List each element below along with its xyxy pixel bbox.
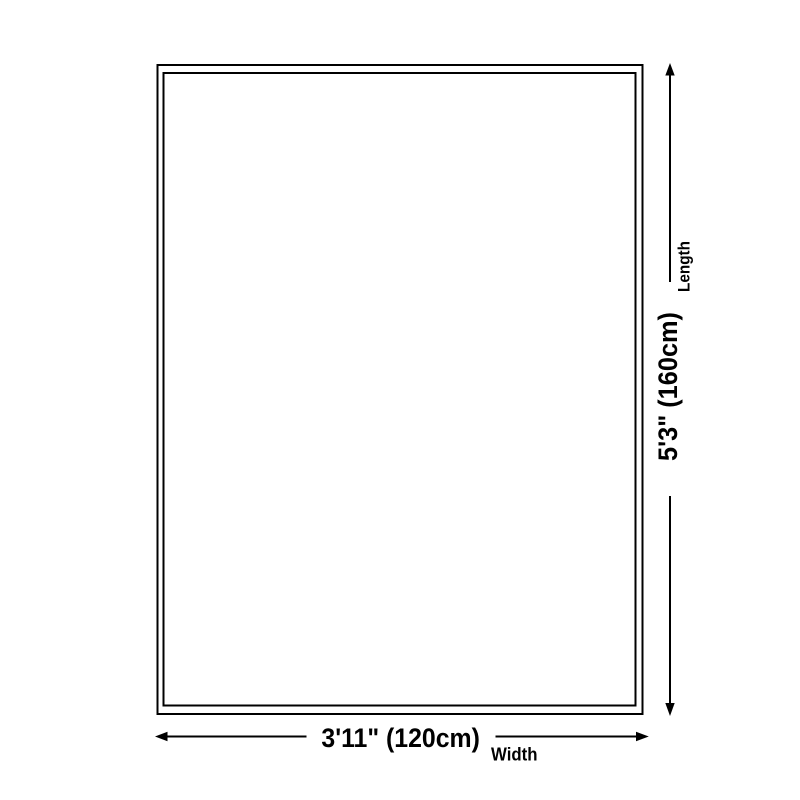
svg-text:Length: Length — [675, 241, 694, 292]
svg-text:5'3" (160cm): 5'3" (160cm) — [653, 312, 683, 461]
svg-text:3'11" (120cm): 3'11" (120cm) — [321, 723, 480, 753]
svg-text:Width: Width — [491, 745, 538, 765]
